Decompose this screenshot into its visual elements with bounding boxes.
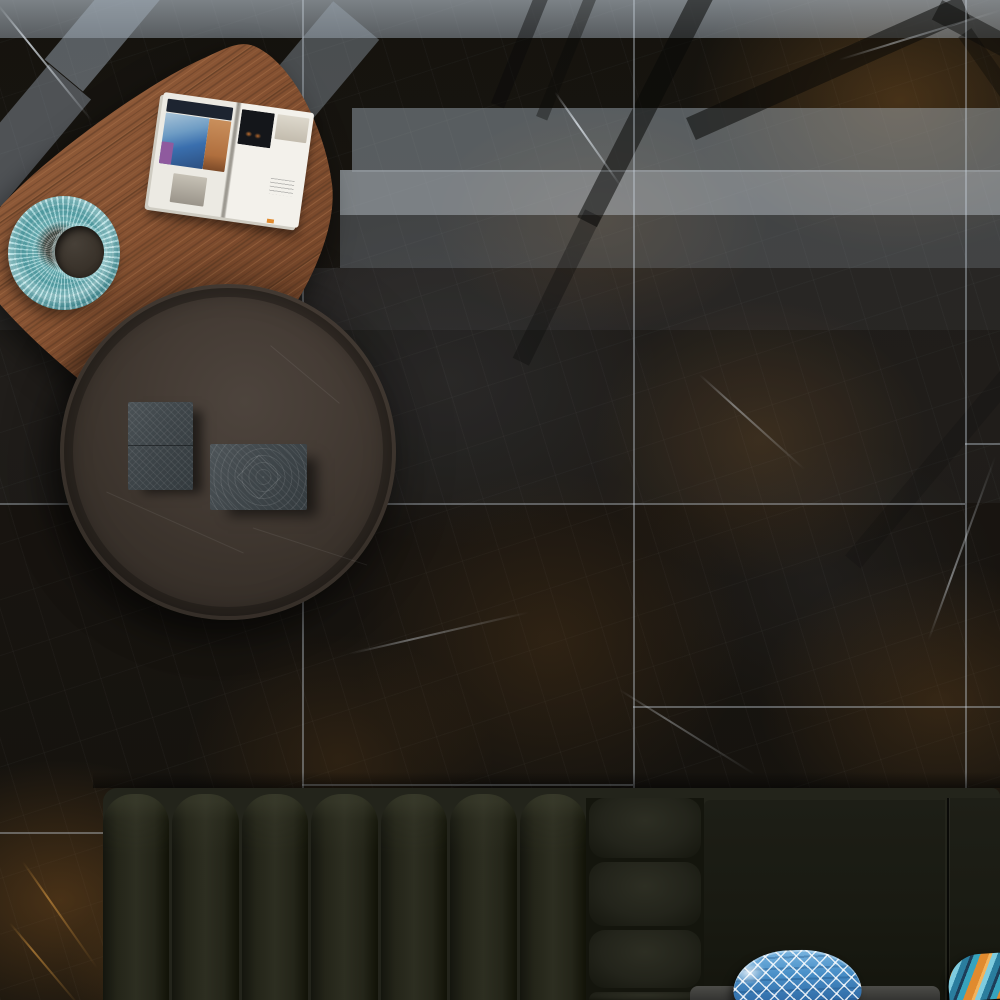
sofa-arm-stack [586,798,704,1000]
arm-cushion [589,798,701,858]
sofa-channel [520,794,586,1000]
tile-grout-horizontal [965,443,1000,445]
magazine-photo-dark [237,109,275,148]
sofa [103,788,1000,1000]
magazine-orange-tab [267,218,274,223]
sofa-channel [172,794,238,1000]
sofa-channel [381,794,447,1000]
arm-cushion [589,862,701,926]
marble-vein-gold [9,922,81,1000]
open-magazine [148,92,315,228]
bowl-interior [55,226,104,278]
reflection-band-upper [352,108,1000,170]
marble-vein [619,689,756,775]
arm-cushion [589,930,701,988]
tile-grout-horizontal [352,170,1000,172]
tile-grout-horizontal [633,706,1000,708]
decorative-box-small [128,402,193,490]
sofa-channel [311,794,377,1000]
sofa-channel [242,794,308,1000]
living-room-photo [0,0,1000,1000]
marble-vein [349,611,530,655]
sofa-channel-section [103,794,586,1000]
reflection-band-lower [340,215,1000,268]
magazine-text-block [269,177,295,196]
sofa-channel [103,794,169,1000]
reflection-band-bright [340,170,1000,215]
decorative-bowl [8,196,120,310]
magazine-photo-gray [170,173,207,206]
sofa-channel [450,794,516,1000]
arm-cushion [589,992,701,1000]
decorative-box-large [210,444,307,510]
magazine-photo-light [275,114,310,144]
